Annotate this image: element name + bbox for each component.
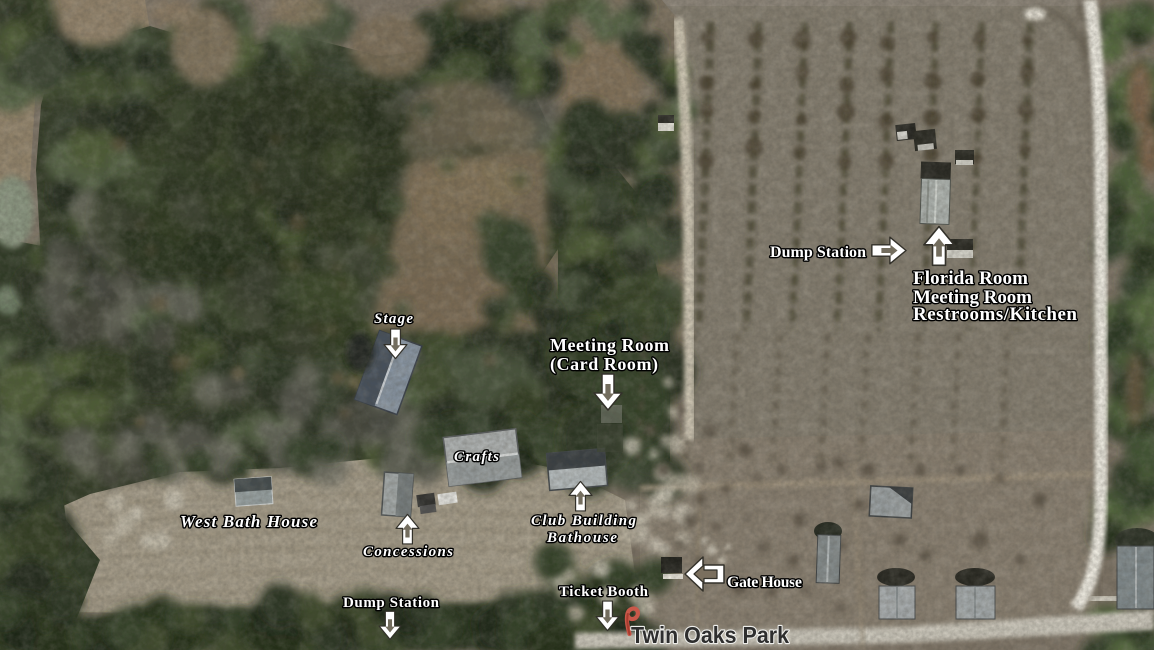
svg-text:Dump Station: Dump Station [343,595,440,611]
svg-text:Meeting Room: Meeting Room [550,335,669,355]
svg-text:Dump Station: Dump Station [770,244,866,261]
svg-text:(Card Room): (Card Room) [550,354,658,375]
svg-text:Stage: Stage [374,311,413,327]
svg-text:Bathouse: Bathouse [546,530,617,546]
svg-text:Crafts: Crafts [454,449,499,465]
svg-text:Gate House: Gate House [727,574,802,591]
svg-text:Restrooms/Kitchen: Restrooms/Kitchen [913,304,1077,325]
svg-text:West Bath House: West Bath House [180,512,317,531]
svg-text:Twin Oaks Park: Twin Oaks Park [631,622,789,648]
svg-text:Ticket Booth: Ticket Booth [559,584,649,600]
svg-text:Florida Room: Florida Room [913,268,1028,289]
svg-text:Concessions: Concessions [363,544,453,560]
